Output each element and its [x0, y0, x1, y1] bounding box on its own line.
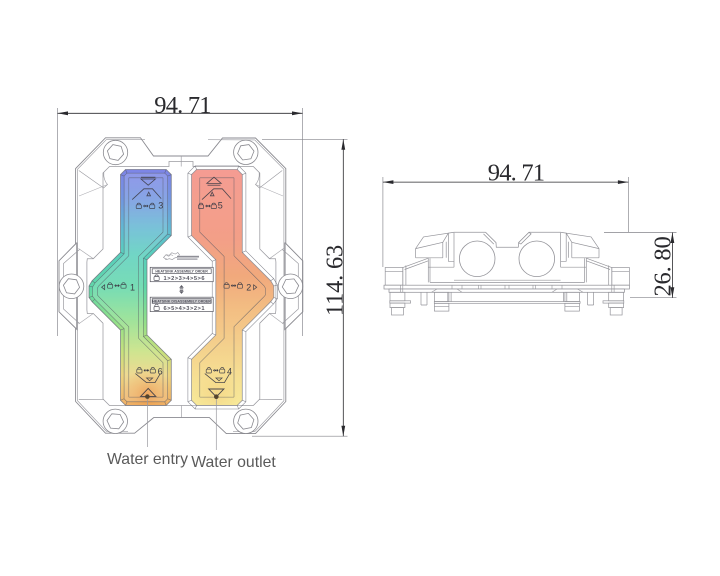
svg-text:6>5>4>3>2>1: 6>5>4>3>2>1	[164, 306, 206, 312]
svg-text:114. 63: 114. 63	[322, 245, 349, 316]
svg-text:4: 4	[227, 366, 232, 376]
svg-text:2: 2	[246, 282, 251, 292]
svg-text:6: 6	[158, 366, 163, 376]
svg-text:94. 71: 94. 71	[488, 160, 544, 187]
svg-text:1>2>3>4>5>6: 1>2>3>4>5>6	[164, 276, 206, 282]
svg-text:HEATSINK DISASSEMBLY ORDER: HEATSINK DISASSEMBLY ORDER	[152, 300, 211, 304]
svg-text:3: 3	[158, 201, 163, 211]
svg-text:HEATSINK ASSEMBLY ORDER: HEATSINK ASSEMBLY ORDER	[155, 270, 208, 274]
svg-text:Water outlet: Water outlet	[191, 454, 276, 471]
svg-text:1: 1	[130, 282, 135, 292]
svg-text:5: 5	[218, 201, 223, 211]
svg-text:94. 71: 94. 71	[154, 92, 210, 119]
svg-text:Water entry: Water entry	[107, 451, 188, 468]
svg-text:26. 80: 26. 80	[650, 236, 677, 296]
